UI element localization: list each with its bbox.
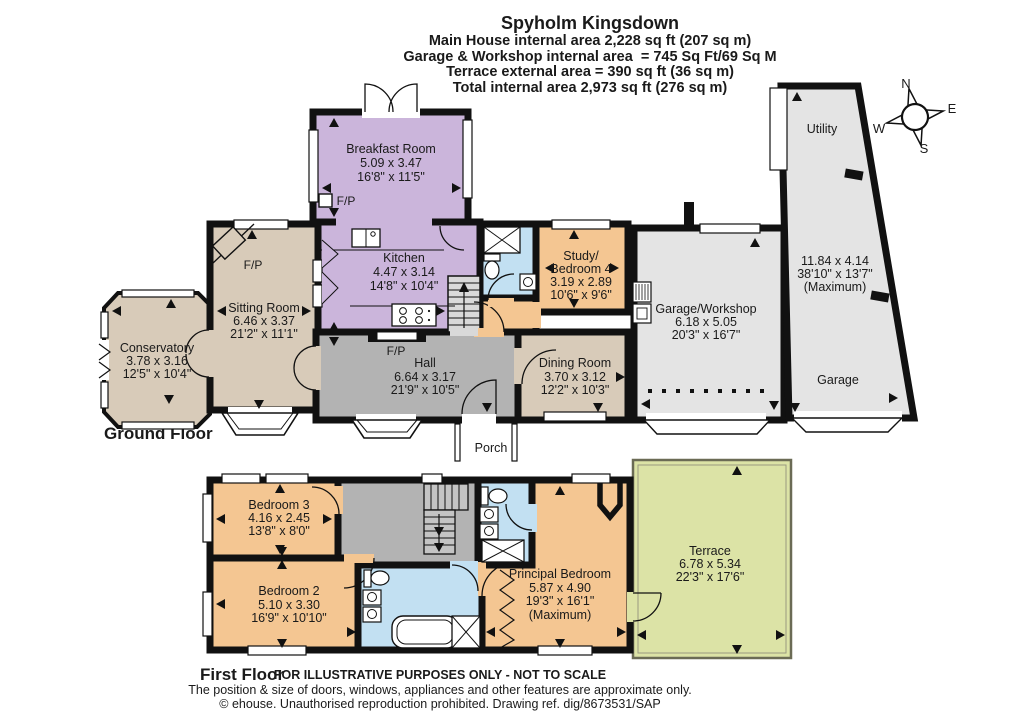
window	[222, 474, 260, 483]
window	[552, 220, 610, 229]
bedroom3-size-ft: 13'8" x 8'0"	[248, 524, 310, 538]
garage-workshop-size-m: 6.18 x 5.05	[675, 315, 737, 329]
porch-label: Porch	[475, 441, 508, 455]
kitchen-size-m: 4.47 x 3.14	[373, 265, 435, 279]
conservatory-label: Conservatory	[120, 341, 195, 355]
window	[203, 494, 212, 542]
hob-icon	[392, 304, 436, 326]
study-size-ft: 10'6" x 9'6"	[550, 288, 612, 302]
window	[463, 120, 472, 198]
window	[203, 592, 212, 636]
compass-s-label: S	[920, 141, 929, 156]
wall-stub	[684, 202, 694, 230]
breakfast-fp-label: F/P	[337, 194, 356, 208]
toilet-icon-ensuite	[481, 487, 507, 505]
compass-rose: N E W S	[873, 76, 957, 156]
window	[422, 474, 442, 483]
breakfast-fireplace-icon	[319, 194, 332, 207]
window	[544, 412, 606, 421]
garage-size-qualifier: (Maximum)	[804, 280, 867, 294]
window	[313, 285, 322, 307]
principal-bedroom-qualifier: (Maximum)	[529, 608, 592, 622]
sitting-room-size-ft: 21'2" x 11'1"	[230, 327, 298, 341]
bedroom2-size-m: 5.10 x 3.30	[258, 598, 320, 612]
hall-fireplace-icon	[368, 330, 426, 342]
dining-room-size-ft: 12'2" x 10'3"	[541, 383, 610, 397]
window	[313, 260, 322, 282]
toilet-icon-gf	[484, 254, 500, 279]
sitting-bay-window	[222, 407, 298, 435]
garage-workshop-label: Garage/Workshop	[655, 302, 756, 316]
bedroom2-size-ft: 16'9" x 10'10"	[251, 611, 327, 625]
floorplan-drawing: Breakfast Room 5.09 x 3.47 16'8" x 11'5"…	[0, 0, 1024, 723]
bedroom2-label: Bedroom 2	[258, 584, 319, 598]
study-label-1: Study/	[563, 249, 599, 263]
window	[266, 474, 308, 483]
window	[309, 130, 318, 202]
sitting-fp-label: F/P	[244, 258, 263, 272]
breakfast-room-size-m: 5.09 x 3.47	[360, 156, 422, 170]
principal-bedroom-label: Principal Bedroom	[509, 567, 611, 581]
principal-bedroom-size-m: 5.87 x 4.90	[529, 581, 591, 595]
sink-icon-gf	[520, 274, 536, 290]
garage-workshop-size-ft: 20'3" x 16'7"	[672, 328, 741, 342]
dining-room-size-m: 3.70 x 3.12	[544, 370, 606, 384]
garage-size-ft: 38'10" x 13'7"	[797, 267, 873, 281]
conservatory-size-m: 3.78 x 3.16	[126, 354, 188, 368]
principal-bedroom-size-ft: 19'3" x 16'1"	[526, 594, 595, 608]
ground-floor-plan: Breakfast Room 5.09 x 3.47 16'8" x 11'5"…	[99, 84, 914, 461]
window	[234, 220, 288, 229]
breakfast-room-label: Breakfast Room	[346, 142, 436, 156]
window	[122, 422, 194, 429]
hall-bay-window	[352, 414, 422, 438]
window	[572, 474, 610, 483]
workshop-appliance-icons	[633, 282, 651, 323]
terrace-label: Terrace	[689, 544, 731, 558]
compass-n-label: N	[901, 76, 910, 91]
shower-icon-gf	[484, 227, 520, 253]
staircase-ground-icon	[448, 276, 480, 332]
compass-e-label: E	[948, 101, 957, 116]
shower-icon-bathroom	[452, 616, 480, 648]
study-label-2: Bedroom 4	[550, 262, 611, 276]
kitchen-size-ft: 14'8" x 10'4"	[370, 279, 439, 293]
breakfast-room-size-ft: 16'8" x 11'5"	[357, 170, 425, 184]
terrace-size-m: 6.78 x 5.34	[679, 557, 741, 571]
garage-door	[792, 411, 902, 432]
compass-circle	[900, 102, 931, 133]
window	[248, 646, 306, 655]
window	[770, 88, 787, 170]
first-floor-plan: Bedroom 3 4.16 x 2.45 13'8" x 8'0" Bedro…	[203, 460, 791, 658]
bathtub-icon	[392, 616, 458, 648]
window	[101, 382, 108, 408]
utility-label: Utility	[807, 122, 838, 136]
study-size-m: 3.19 x 2.89	[550, 275, 612, 289]
workshop-garage-door	[644, 413, 770, 434]
conservatory-garden-door	[99, 340, 110, 380]
bedroom3-size-m: 4.16 x 2.45	[248, 511, 310, 525]
garage-size-m: 11.84 x 4.14	[801, 254, 869, 268]
hall-size-ft: 21'9" x 10'5"	[391, 383, 460, 397]
hall-fp-label: F/P	[387, 344, 406, 358]
dining-room-label: Dining Room	[539, 356, 611, 370]
utility-garage-block	[781, 86, 914, 418]
hall-label: Hall	[414, 356, 436, 370]
shower-icon-ensuite	[482, 540, 524, 562]
breakfast-french-doors	[362, 84, 420, 118]
compass-w-label: W	[873, 121, 886, 136]
conservatory-size-ft: 12'5" x 10'4"	[123, 367, 192, 381]
window	[122, 290, 194, 297]
window	[538, 646, 592, 655]
sitting-room-size-m: 6.46 x 3.37	[233, 314, 295, 328]
floorplan-page: Spyholm Kingsdown Main House internal ar…	[0, 0, 1024, 723]
kitchen-label: Kitchen	[383, 251, 425, 265]
kitchen-breakfast-opening	[336, 217, 432, 228]
garage-label: Garage	[817, 373, 859, 387]
stairs-opening	[450, 328, 478, 336]
terrace-size-ft: 22'3" x 17'6"	[676, 570, 745, 584]
window	[101, 312, 108, 338]
sitting-room-label: Sitting Room	[228, 301, 300, 315]
kitchen-sink-icon	[352, 229, 380, 247]
window	[700, 224, 760, 233]
bedroom3-label: Bedroom 3	[248, 498, 309, 512]
hall-size-m: 6.64 x 3.17	[394, 370, 456, 384]
